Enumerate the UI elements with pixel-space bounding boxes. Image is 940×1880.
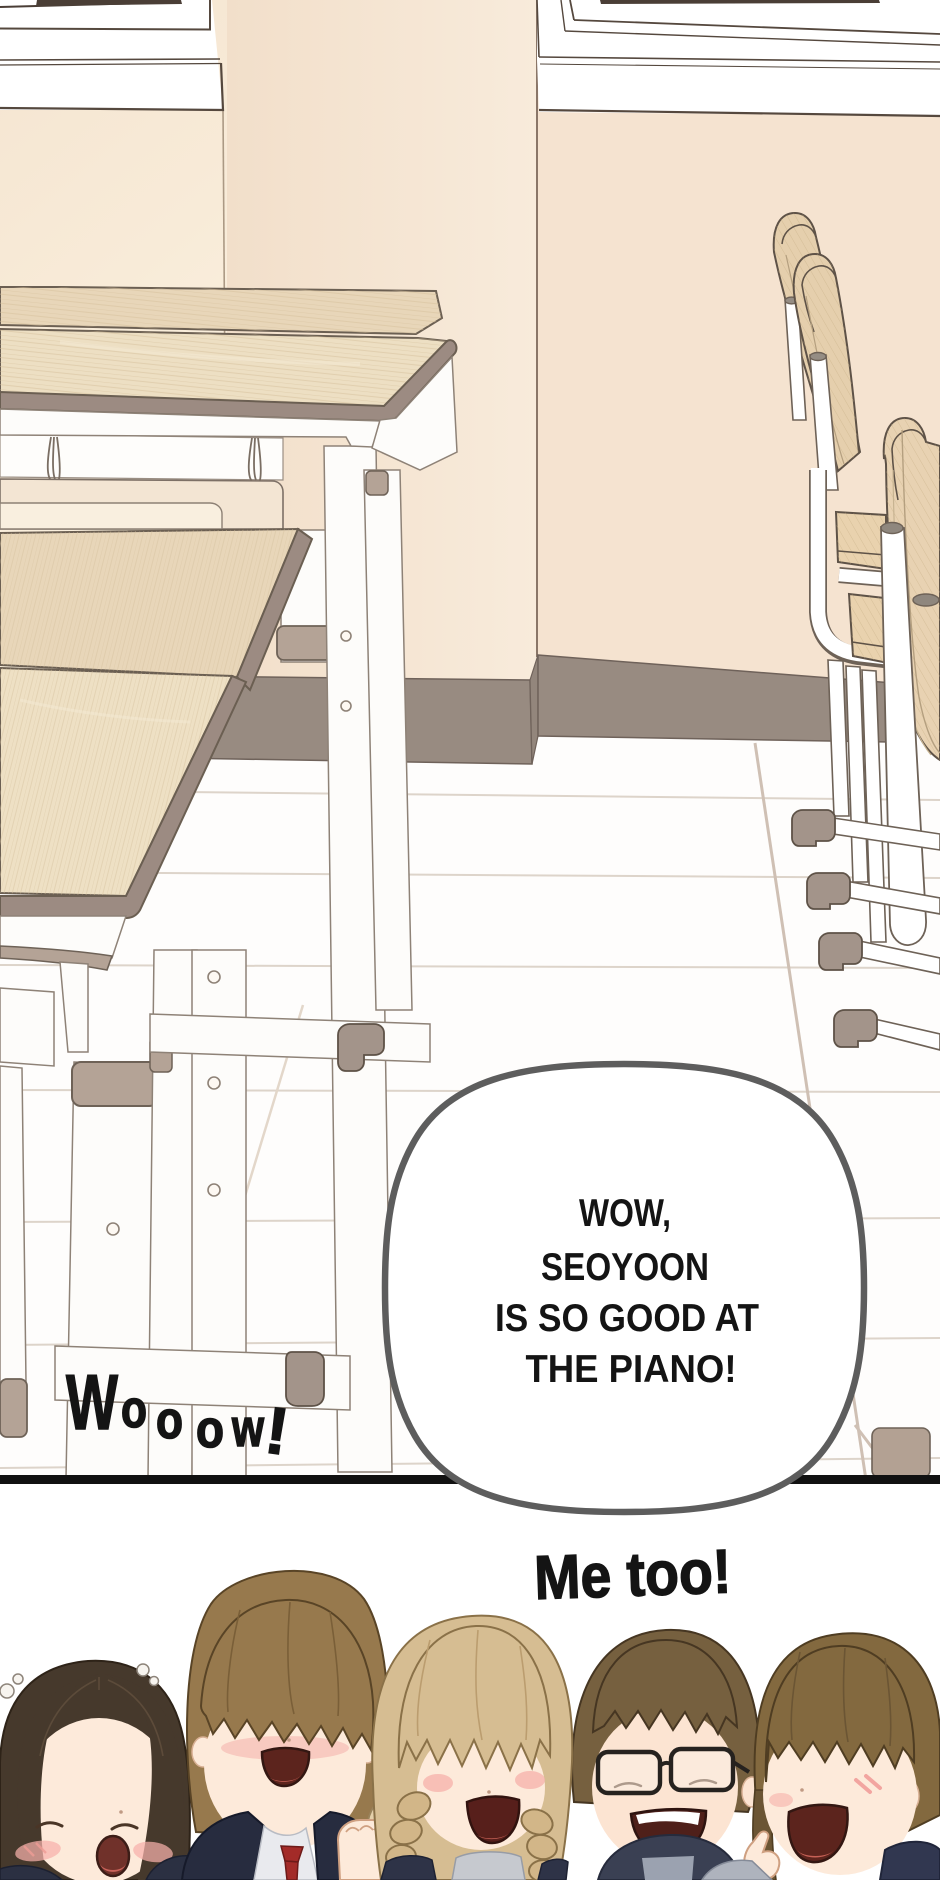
svg-text:SEOYOON: SEOYOON [541,1246,709,1289]
svg-text:IS SO GOOD AT: IS SO GOOD AT [495,1297,759,1340]
svg-text:THE PIANO!: THE PIANO! [526,1348,737,1391]
svg-text:o: o [196,1400,224,1459]
svg-text:Me too!: Me too! [533,1537,732,1613]
svg-text:o: o [121,1380,147,1439]
svg-text:w: w [231,1399,264,1458]
svg-text:o: o [156,1391,183,1450]
svg-text:W: W [66,1358,118,1446]
svg-text:WOW,: WOW, [579,1192,671,1235]
